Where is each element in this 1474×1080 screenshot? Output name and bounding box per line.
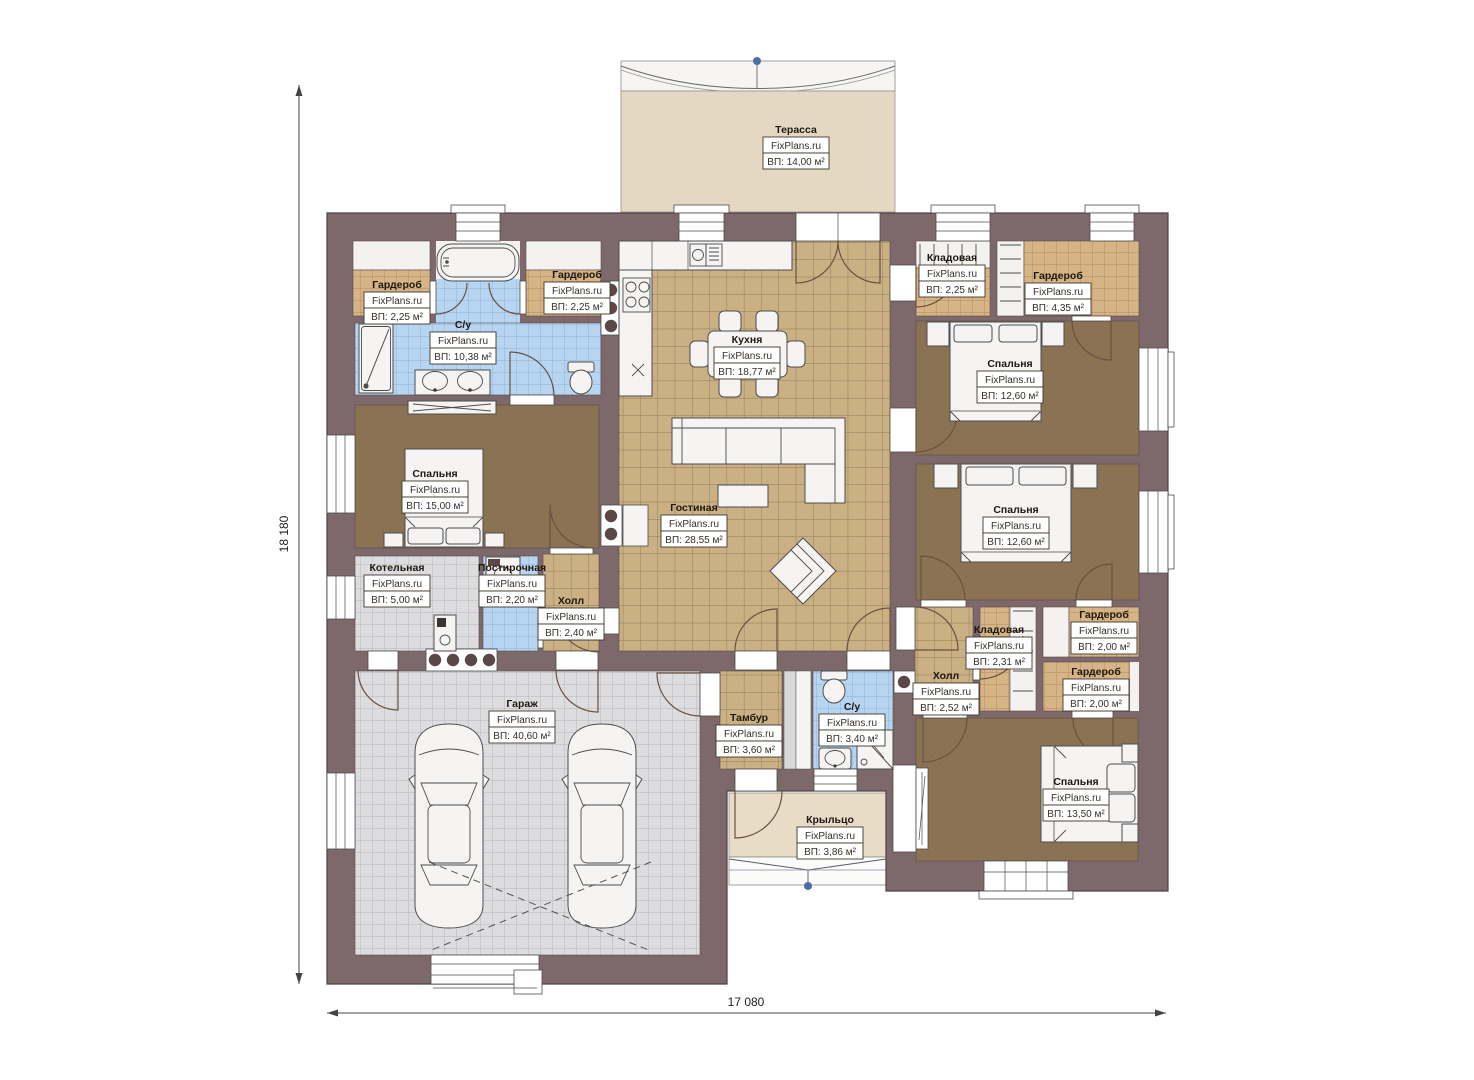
- svg-text:FixPlans.ru: FixPlans.ru: [546, 612, 596, 623]
- svg-text:ВП: 2,25 м²: ВП: 2,25 м²: [371, 312, 424, 323]
- svg-text:FixPlans.ru: FixPlans.ru: [985, 375, 1035, 386]
- svg-text:С/у: С/у: [455, 319, 472, 331]
- svg-text:ВП: 3,60 м²: ВП: 3,60 м²: [723, 745, 776, 756]
- svg-text:ВП: 3,40 м²: ВП: 3,40 м²: [826, 734, 879, 745]
- svg-text:FixPlans.ru: FixPlans.ru: [805, 831, 855, 842]
- svg-text:Гардероб: Гардероб: [1071, 666, 1121, 678]
- svg-text:FixPlans.ru: FixPlans.ru: [1033, 287, 1083, 298]
- svg-text:Гардероб: Гардероб: [1079, 609, 1129, 621]
- svg-text:Крыльцо: Крыльцо: [806, 814, 854, 826]
- svg-text:ВП: 5,00 м²: ВП: 5,00 м²: [371, 595, 424, 606]
- svg-text:FixPlans.ru: FixPlans.ru: [724, 729, 774, 740]
- svg-text:Гардероб: Гардероб: [552, 269, 602, 281]
- svg-text:Спальня: Спальня: [412, 468, 457, 480]
- svg-text:Тамбур: Тамбур: [730, 712, 768, 724]
- svg-text:FixPlans.ru: FixPlans.ru: [552, 286, 602, 297]
- svg-text:Холл: Холл: [558, 595, 584, 607]
- svg-text:FixPlans.ru: FixPlans.ru: [487, 579, 537, 590]
- svg-text:FixPlans.ru: FixPlans.ru: [372, 296, 422, 307]
- svg-text:ВП: 3,86 м²: ВП: 3,86 м²: [804, 847, 857, 858]
- svg-text:FixPlans.ru: FixPlans.ru: [1051, 793, 1101, 804]
- svg-text:FixPlans.ru: FixPlans.ru: [372, 579, 422, 590]
- svg-text:ВП: 14,00 м²: ВП: 14,00 м²: [767, 157, 825, 168]
- svg-text:ВП: 2,20 м²: ВП: 2,20 м²: [486, 595, 539, 606]
- svg-text:ВП: 13,50 м²: ВП: 13,50 м²: [1047, 809, 1105, 820]
- svg-text:FixPlans.ru: FixPlans.ru: [438, 336, 488, 347]
- svg-text:Постирочная: Постирочная: [478, 562, 546, 574]
- svg-text:ВП: 2,31 м²: ВП: 2,31 м²: [973, 657, 1026, 668]
- svg-text:FixPlans.ru: FixPlans.ru: [669, 519, 719, 530]
- svg-text:FixPlans.ru: FixPlans.ru: [722, 351, 772, 362]
- svg-text:Спальня: Спальня: [987, 358, 1032, 370]
- svg-text:ВП: 15,00 м²: ВП: 15,00 м²: [406, 501, 464, 512]
- svg-text:FixPlans.ru: FixPlans.ru: [927, 269, 977, 280]
- svg-text:ВП: 2,52 м²: ВП: 2,52 м²: [920, 703, 973, 714]
- svg-text:ВП: 2,40 м²: ВП: 2,40 м²: [545, 628, 598, 639]
- svg-text:ВП: 12,60 м²: ВП: 12,60 м²: [987, 537, 1045, 548]
- svg-text:Гостиная: Гостиная: [670, 502, 717, 514]
- svg-text:ВП: 4,35 м²: ВП: 4,35 м²: [1032, 303, 1085, 314]
- svg-text:FixPlans.ru: FixPlans.ru: [410, 485, 460, 496]
- svg-text:Котельная: Котельная: [370, 562, 425, 574]
- svg-text:Кладовая: Кладовая: [974, 624, 1024, 636]
- svg-text:Гардероб: Гардероб: [1033, 270, 1083, 282]
- svg-text:FixPlans.ru: FixPlans.ru: [921, 687, 971, 698]
- svg-text:ВП: 18,77 м²: ВП: 18,77 м²: [718, 367, 776, 378]
- svg-text:Терасса: Терасса: [775, 124, 817, 136]
- svg-text:Кухня: Кухня: [732, 334, 763, 346]
- svg-text:ВП: 2,00 м²: ВП: 2,00 м²: [1070, 699, 1123, 710]
- svg-text:FixPlans.ru: FixPlans.ru: [991, 521, 1041, 532]
- svg-text:Гараж: Гараж: [506, 698, 538, 710]
- svg-text:ВП: 40,60 м²: ВП: 40,60 м²: [493, 731, 551, 742]
- svg-text:ВП: 12,60 м²: ВП: 12,60 м²: [981, 391, 1039, 402]
- svg-text:Спальня: Спальня: [993, 504, 1038, 516]
- svg-text:FixPlans.ru: FixPlans.ru: [497, 715, 547, 726]
- svg-text:Спальня: Спальня: [1053, 776, 1098, 788]
- svg-text:ВП: 28,55 м²: ВП: 28,55 м²: [665, 535, 723, 546]
- svg-text:FixPlans.ru: FixPlans.ru: [771, 141, 821, 152]
- svg-text:17 080: 17 080: [728, 995, 765, 1009]
- svg-text:С/у: С/у: [844, 701, 861, 713]
- svg-text:18 180: 18 180: [277, 515, 291, 552]
- svg-text:FixPlans.ru: FixPlans.ru: [827, 718, 877, 729]
- svg-text:ВП: 2,25 м²: ВП: 2,25 м²: [926, 285, 979, 296]
- svg-text:FixPlans.ru: FixPlans.ru: [1071, 683, 1121, 694]
- svg-text:Гардероб: Гардероб: [372, 279, 422, 291]
- svg-text:Кладовая: Кладовая: [927, 252, 977, 264]
- svg-text:ВП: 2,00 м²: ВП: 2,00 м²: [1078, 642, 1131, 653]
- svg-text:ВП: 2,25 м²: ВП: 2,25 м²: [551, 302, 604, 313]
- svg-text:FixPlans.ru: FixPlans.ru: [974, 641, 1024, 652]
- svg-text:FixPlans.ru: FixPlans.ru: [1079, 626, 1129, 637]
- svg-text:ВП: 10,38 м²: ВП: 10,38 м²: [434, 352, 492, 363]
- svg-text:Холл: Холл: [933, 670, 959, 682]
